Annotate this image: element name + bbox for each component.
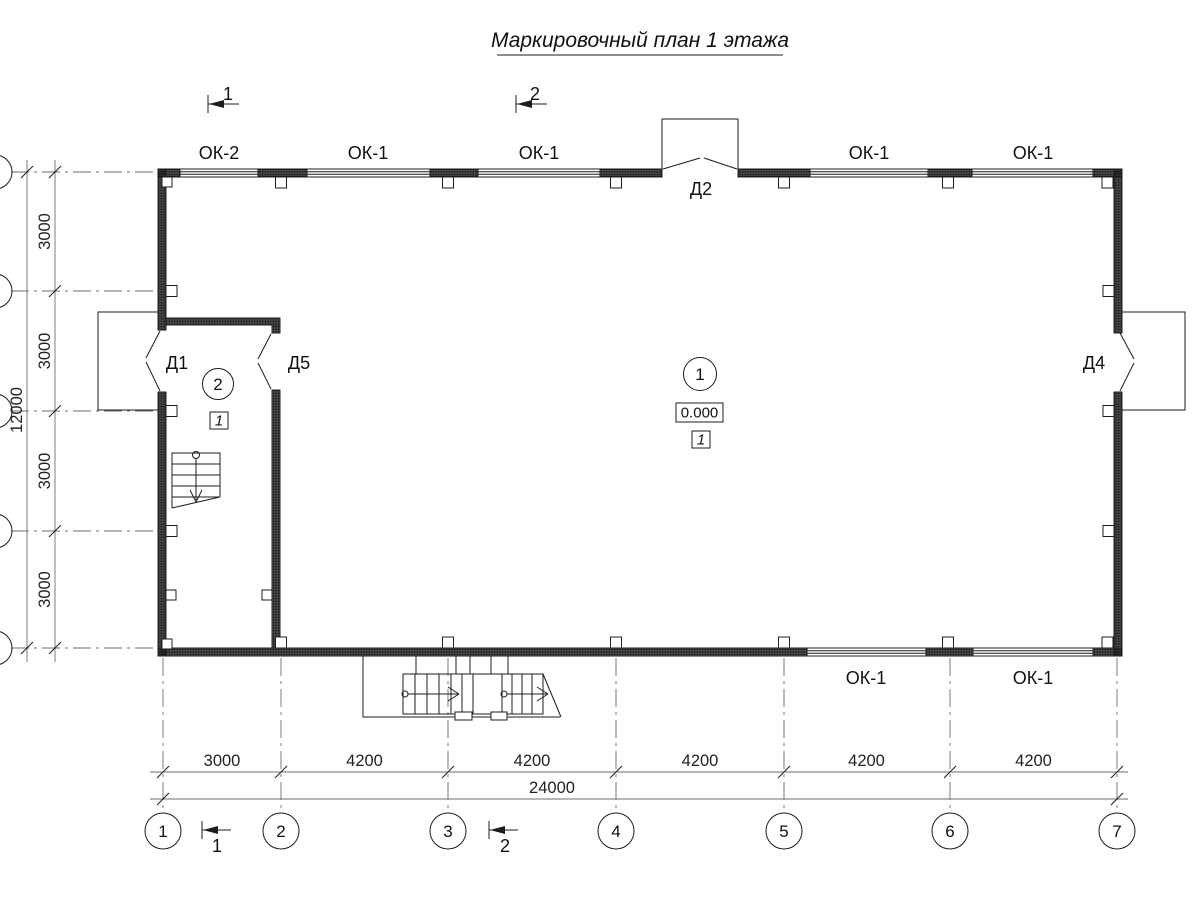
dimension-total-label: 24000	[529, 779, 575, 797]
dimension-total-label: 12000	[8, 387, 26, 433]
dimension-label: 3000	[36, 453, 54, 490]
exterior-walls	[158, 169, 1122, 656]
opening-labels: ОК-2 ОК-1 ОК-1 ОК-1 ОК-1 ОК-1 ОК-1 Д1 Д2…	[166, 143, 1105, 688]
axis-number: 6	[945, 822, 954, 841]
door-label: Д5	[288, 353, 310, 373]
interior-stair	[172, 452, 220, 509]
section-number: 2	[530, 84, 540, 104]
room-number: 2	[213, 375, 222, 394]
window-label: ОК-1	[519, 143, 560, 163]
section-number: 1	[223, 84, 233, 104]
door-label: Д2	[690, 179, 712, 199]
dimension-label: 3000	[36, 333, 54, 370]
section-marks: 1 2 1 2	[202, 84, 547, 856]
window-label: ОК-1	[1013, 668, 1054, 688]
elevation-mark: 0.000	[681, 405, 719, 422]
dimension-label: 4200	[682, 752, 719, 770]
window-label: ОК-1	[849, 143, 890, 163]
dimension-label: 4200	[346, 752, 383, 770]
room-marks: 1 0.000 1 2 1	[203, 358, 724, 449]
axis-number: 2	[276, 822, 285, 841]
door-label: Д4	[1083, 353, 1105, 373]
section-number: 2	[500, 836, 510, 856]
window-label: ОК-1	[348, 143, 389, 163]
plan-title: Маркировочный план 1 этажа	[491, 29, 789, 52]
room-number: 1	[695, 365, 704, 384]
dimension-label: 3000	[36, 213, 54, 250]
dimension-label: 4200	[1015, 752, 1052, 770]
dimension-label: 3000	[36, 571, 54, 608]
section-number: 1	[212, 836, 222, 856]
column-markers	[162, 177, 1114, 649]
exterior-stair	[363, 656, 561, 720]
dimension-label: 3000	[204, 752, 241, 770]
axis-number: 5	[779, 822, 788, 841]
axis-bubbles-bottom: 1 2 3 4 5 6 7	[145, 813, 1135, 849]
axis-number: 3	[443, 822, 452, 841]
floor-plan-sheet: Маркировочный план 1 этажа	[0, 0, 1200, 900]
floor-type-mark: 1	[697, 432, 705, 449]
axis-number: 4	[611, 822, 620, 841]
dimension-chain-bottom: 3000 4200 4200 4200 4200 4200 24000	[150, 752, 1128, 805]
window-label: ОК-1	[1013, 143, 1054, 163]
dimension-label: 4200	[848, 752, 885, 770]
door-label: Д1	[166, 353, 188, 373]
dimension-label: 4200	[514, 752, 551, 770]
axis-grid-lines	[11, 172, 1117, 812]
axis-number: 7	[1112, 822, 1121, 841]
floor-plan-drawing: Маркировочный план 1 этажа	[0, 0, 1200, 900]
axis-number: 1	[158, 822, 167, 841]
window-label: ОК-2	[199, 143, 240, 163]
floor-type-mark: 1	[215, 413, 223, 430]
window-label: ОК-1	[846, 668, 887, 688]
